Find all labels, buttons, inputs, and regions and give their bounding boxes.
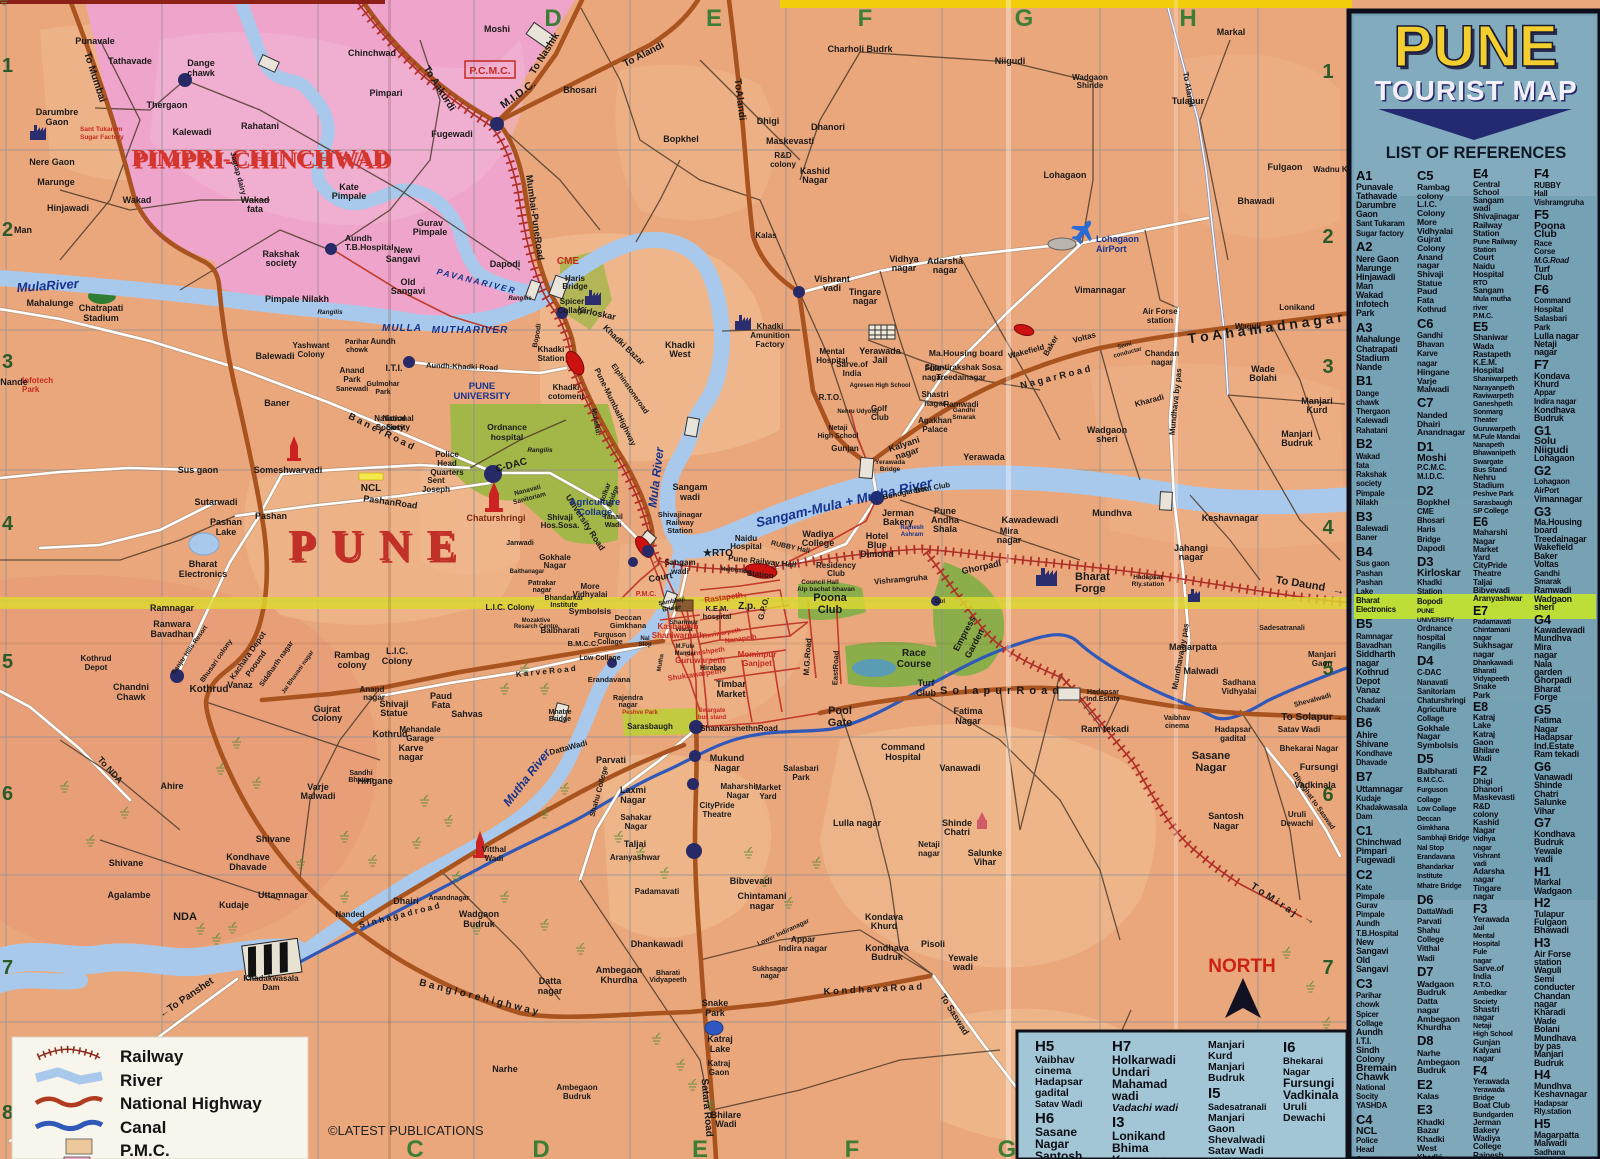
svg-text:To Solapur→: To Solapur→ bbox=[1281, 712, 1342, 723]
svg-text:fata: fata bbox=[247, 204, 264, 214]
svg-text:Institute: Institute bbox=[550, 602, 577, 609]
svg-text:Pimpale: Pimpale bbox=[413, 227, 448, 237]
svg-text:Khurdha: Khurdha bbox=[601, 975, 639, 985]
svg-text:©LATEST PUBLICATIONS: ©LATEST PUBLICATIONS bbox=[328, 1123, 484, 1138]
svg-text:T.B.Hospital: T.B.Hospital bbox=[345, 242, 394, 252]
svg-text:Parvati: Parvati bbox=[596, 755, 626, 765]
svg-text:Bhosari: Bhosari bbox=[563, 85, 597, 95]
svg-text:Ambegaon: Ambegaon bbox=[556, 1083, 597, 1092]
svg-text:Vidhyalai: Vidhyalai bbox=[573, 590, 608, 599]
svg-text:7: 7 bbox=[1322, 957, 1333, 979]
svg-text:Yard: Yard bbox=[759, 792, 776, 801]
svg-text:Dhankawadi: Dhankawadi bbox=[631, 939, 684, 949]
svg-text:Mahalunge: Mahalunge bbox=[26, 298, 73, 308]
svg-text:Maskevasti: Maskevasti bbox=[766, 136, 814, 146]
svg-text:Swargate: Swargate bbox=[699, 708, 726, 714]
svg-text:Council Hall: Council Hall bbox=[801, 579, 839, 586]
svg-text:Bharat: Bharat bbox=[1075, 571, 1110, 583]
svg-text:Dhavade: Dhavade bbox=[229, 862, 267, 872]
svg-text:Vimannagar: Vimannagar bbox=[1074, 285, 1126, 295]
svg-text:Kalas: Kalas bbox=[755, 231, 777, 240]
svg-text:Dapodi: Dapodi bbox=[490, 259, 521, 269]
svg-text:D: D bbox=[532, 1136, 549, 1159]
svg-text:Nagar: Nagar bbox=[714, 763, 740, 773]
svg-text:Nagar: Nagar bbox=[544, 561, 567, 570]
svg-text:wadi: wadi bbox=[670, 567, 689, 576]
svg-text:sheri: sheri bbox=[1096, 434, 1118, 444]
svg-text:Guruwarpeth: Guruwarpeth bbox=[675, 656, 725, 665]
svg-text:PIMPRI-CHINCHWAD: PIMPRI-CHINCHWAD bbox=[132, 146, 391, 172]
svg-text:Vaibhav: Vaibhav bbox=[1164, 715, 1191, 722]
svg-text:1: 1 bbox=[1322, 61, 1333, 83]
svg-text:nagar: nagar bbox=[1179, 552, 1204, 562]
svg-text:Lonikand: Lonikand bbox=[1279, 303, 1315, 312]
svg-text:Station: Station bbox=[667, 526, 693, 535]
svg-text:Budruk: Budruk bbox=[871, 952, 903, 962]
svg-text:Manjari: Manjari bbox=[1308, 650, 1336, 659]
svg-text:Dewachi: Dewachi bbox=[1281, 819, 1313, 828]
svg-text:Sangam: Sangam bbox=[664, 558, 695, 567]
svg-text:NDA: NDA bbox=[173, 911, 197, 923]
svg-text:R&D: R&D bbox=[774, 151, 792, 160]
svg-text:3: 3 bbox=[2, 351, 13, 373]
svg-text:Dange: Dange bbox=[187, 58, 215, 68]
svg-text:Mukund: Mukund bbox=[710, 753, 745, 763]
svg-text:7: 7 bbox=[2, 957, 13, 979]
svg-text:Command: Command bbox=[881, 742, 925, 752]
svg-text:Laxmi: Laxmi bbox=[620, 785, 646, 795]
svg-text:F: F bbox=[845, 1136, 860, 1159]
svg-text:hospital: hospital bbox=[491, 432, 524, 442]
svg-text:Club: Club bbox=[871, 413, 889, 422]
svg-text:Khadki: Khadki bbox=[553, 383, 580, 392]
svg-text:2: 2 bbox=[2, 219, 13, 241]
svg-text:Hirabag: Hirabag bbox=[700, 665, 726, 672]
svg-text:Sugar Factory: Sugar Factory bbox=[80, 134, 124, 141]
svg-text:Baithanagar: Baithanagar bbox=[510, 569, 545, 575]
svg-text:Mundhva: Mundhva bbox=[1092, 508, 1132, 518]
svg-text:Indira nagar: Indira nagar bbox=[779, 943, 828, 953]
svg-text:Pimpale: Pimpale bbox=[332, 191, 367, 201]
svg-text:Bhawadi: Bhawadi bbox=[1237, 196, 1274, 206]
svg-text:Sant Tukaram: Sant Tukaram bbox=[80, 126, 123, 133]
svg-text:B.M.C.C.: B.M.C.C. bbox=[568, 639, 599, 648]
svg-text:Palace: Palace bbox=[922, 425, 948, 434]
svg-text:Vihar: Vihar bbox=[974, 857, 997, 867]
svg-text:Vidyapeeth: Vidyapeeth bbox=[649, 977, 686, 984]
svg-text:Pisoli: Pisoli bbox=[921, 939, 945, 949]
svg-text:Bavadhan: Bavadhan bbox=[150, 629, 193, 639]
svg-text:Bridge: Bridge bbox=[549, 716, 571, 723]
svg-text:Wakad: Wakad bbox=[123, 195, 152, 205]
svg-text:station: station bbox=[1147, 316, 1173, 325]
svg-text:Lulla nagar: Lulla nagar bbox=[833, 818, 882, 828]
svg-text:2: 2 bbox=[1322, 226, 1333, 248]
svg-text:Jail: Jail bbox=[872, 355, 887, 365]
svg-text:Salasbari: Salasbari bbox=[783, 764, 819, 773]
svg-text:Patrakar: Patrakar bbox=[528, 580, 556, 587]
svg-text:Fatima: Fatima bbox=[953, 706, 983, 716]
svg-text:4: 4 bbox=[1322, 517, 1334, 539]
svg-text:1: 1 bbox=[2, 55, 13, 77]
svg-text:Turf: Turf bbox=[918, 678, 936, 688]
svg-text:Lake: Lake bbox=[216, 527, 237, 537]
svg-text:Keshavnagar: Keshavnagar bbox=[1202, 513, 1259, 523]
svg-text:Rahatani: Rahatani bbox=[241, 121, 279, 131]
svg-text:Ramnagar: Ramnagar bbox=[150, 603, 195, 613]
svg-text:Agalambe: Agalambe bbox=[107, 890, 150, 900]
svg-text:Sutarwadi: Sutarwadi bbox=[194, 497, 237, 507]
svg-text:Park: Park bbox=[705, 1008, 726, 1018]
svg-text:Shivane: Shivane bbox=[109, 858, 144, 868]
svg-text:S o l a p u r R o a d: S o l a p u r R o a d bbox=[940, 685, 1060, 697]
svg-text:nagar: nagar bbox=[853, 296, 878, 306]
svg-text:Stop: Stop bbox=[638, 642, 652, 648]
svg-text:Khurd: Khurd bbox=[871, 921, 898, 931]
svg-text:Tanail: Tanail bbox=[603, 514, 623, 521]
svg-text:Wadi: Wadi bbox=[485, 854, 504, 863]
svg-text:Nagar: Nagar bbox=[727, 791, 750, 800]
svg-text:Sarve.of: Sarve.of bbox=[836, 360, 868, 369]
svg-text:Dimond: Dimond bbox=[860, 549, 894, 559]
svg-text:Nere Gaon: Nere Gaon bbox=[29, 157, 75, 167]
svg-text:Kalewadi: Kalewadi bbox=[172, 127, 211, 137]
svg-text:West: West bbox=[669, 349, 690, 359]
svg-text:Ambegaon: Ambegaon bbox=[596, 965, 643, 975]
svg-text:Chatri: Chatri bbox=[944, 827, 970, 837]
svg-text:Bharat: Bharat bbox=[189, 559, 218, 569]
svg-text:Anandnagar: Anandnagar bbox=[429, 895, 470, 902]
svg-text:Yashwant: Yashwant bbox=[293, 341, 330, 350]
svg-text:Pool: Pool bbox=[828, 705, 852, 717]
svg-text:Nagar: Nagar bbox=[1213, 821, 1239, 831]
svg-text:Katraj: Katraj bbox=[708, 1059, 731, 1068]
svg-text:Collage: Collage bbox=[558, 306, 587, 315]
svg-text:Bopkhel: Bopkhel bbox=[663, 134, 699, 144]
svg-text:Gunjan: Gunjan bbox=[831, 444, 859, 453]
svg-text:Yerawada: Yerawada bbox=[963, 452, 1006, 462]
svg-text:Gulmohar: Gulmohar bbox=[366, 381, 399, 388]
svg-text:Fursungi: Fursungi bbox=[1300, 762, 1339, 772]
svg-text:Treedainagar: Treedainagar bbox=[936, 373, 986, 382]
svg-text:nagar: nagar bbox=[399, 752, 424, 762]
svg-text:Chintamani: Chintamani bbox=[737, 891, 786, 901]
svg-text:Markal: Markal bbox=[1217, 27, 1246, 37]
svg-text:Parihar: Parihar bbox=[345, 339, 369, 346]
svg-text:Colony: Colony bbox=[382, 656, 413, 666]
svg-text:Budruk: Budruk bbox=[463, 919, 495, 929]
svg-text:Ram tekadi: Ram tekadi bbox=[1081, 724, 1129, 734]
svg-text:Uttamnagar: Uttamnagar bbox=[258, 890, 309, 900]
svg-text:Ma.Housing board: Ma.Housing board bbox=[929, 348, 1003, 358]
svg-text:Garage: Garage bbox=[406, 734, 434, 743]
svg-text:Gaon: Gaon bbox=[1312, 659, 1333, 668]
svg-text:Dhigi: Dhigi bbox=[757, 116, 780, 126]
svg-text:Aranyashwar: Aranyashwar bbox=[610, 853, 660, 862]
svg-text:Socity: Socity bbox=[386, 423, 411, 432]
svg-text:Gimkhana: Gimkhana bbox=[610, 621, 647, 630]
svg-text:Waguli: Waguli bbox=[1235, 322, 1261, 331]
svg-text:Vanaz: Vanaz bbox=[227, 680, 253, 690]
svg-text:Kurd: Kurd bbox=[1307, 405, 1328, 415]
svg-text:Mominpur: Mominpur bbox=[738, 650, 777, 659]
svg-text:Rajnesh: Rajnesh bbox=[900, 525, 924, 531]
svg-text:Ordnance: Ordnance bbox=[487, 422, 527, 432]
svg-text:Bolahi: Bolahi bbox=[1249, 373, 1277, 383]
svg-text:Sahakar: Sahakar bbox=[620, 813, 651, 822]
svg-text:Hospital: Hospital bbox=[885, 752, 921, 762]
svg-text:Shastri: Shastri bbox=[921, 390, 948, 399]
svg-text:Fugewadi: Fugewadi bbox=[431, 129, 473, 139]
svg-text:CME: CME bbox=[557, 256, 580, 267]
svg-text:Resarch Centre: Resarch Centre bbox=[514, 624, 559, 630]
svg-text:wadi: wadi bbox=[679, 492, 700, 502]
svg-text:Ganjpet: Ganjpet bbox=[742, 659, 772, 668]
svg-text:Budruk: Budruk bbox=[1281, 438, 1313, 448]
svg-text:L.I.C. Colony: L.I.C. Colony bbox=[486, 603, 535, 612]
svg-text:Park: Park bbox=[375, 389, 390, 396]
svg-text:Golf: Golf bbox=[871, 404, 887, 413]
svg-text:Chawk: Chawk bbox=[116, 692, 146, 702]
svg-text:8: 8 bbox=[2, 1102, 13, 1124]
svg-text:Shala: Shala bbox=[933, 524, 958, 534]
svg-text:L.I.C.: L.I.C. bbox=[386, 646, 408, 656]
svg-text:Factory: Factory bbox=[756, 340, 785, 349]
svg-text:Rangilis: Rangilis bbox=[317, 309, 343, 316]
svg-text:Sadhana: Sadhana bbox=[1222, 678, 1256, 687]
svg-text:Punavale: Punavale bbox=[75, 36, 115, 46]
svg-text:Erandavana: Erandavana bbox=[588, 675, 631, 684]
svg-text:CityPride: CityPride bbox=[699, 801, 735, 810]
svg-text:5: 5 bbox=[2, 651, 13, 673]
svg-text:nagar: nagar bbox=[997, 535, 1022, 545]
svg-text:Kudaje: Kudaje bbox=[219, 900, 249, 910]
svg-text:Sasane: Sasane bbox=[1192, 750, 1231, 762]
svg-text:Tulapur: Tulapur bbox=[1172, 96, 1205, 106]
svg-text:Bridge: Bridge bbox=[880, 466, 901, 473]
svg-text:Nande: Nande bbox=[0, 377, 28, 387]
svg-text:Chinchwad: Chinchwad bbox=[348, 48, 396, 58]
svg-text:Hadapsar: Hadapsar bbox=[1215, 725, 1251, 734]
svg-text:Hos.Sosa.: Hos.Sosa. bbox=[541, 521, 580, 530]
svg-text:Sangavi: Sangavi bbox=[391, 286, 426, 296]
svg-text:Market: Market bbox=[716, 689, 745, 699]
svg-text:nagar: nagar bbox=[760, 973, 779, 980]
svg-text:Netaji: Netaji bbox=[828, 425, 847, 432]
svg-text:Quarters: Quarters bbox=[430, 468, 464, 477]
svg-text:Chaturshringi: Chaturshringi bbox=[466, 513, 525, 523]
svg-text:Club: Club bbox=[916, 688, 936, 698]
svg-text:hospital: hospital bbox=[703, 612, 732, 621]
svg-text:C: C bbox=[406, 1136, 423, 1159]
svg-text:Joseph: Joseph bbox=[422, 485, 450, 494]
svg-text:Mehandale: Mehandale bbox=[399, 725, 441, 734]
svg-text:gadital: gadital bbox=[1220, 734, 1246, 743]
svg-text:colony: colony bbox=[337, 660, 366, 670]
svg-text:Yerawada: Yerawada bbox=[875, 459, 905, 466]
svg-text:Hadapsar: Hadapsar bbox=[1133, 574, 1163, 581]
svg-text:3: 3 bbox=[1322, 356, 1333, 378]
svg-text:Sukhsagar: Sukhsagar bbox=[752, 966, 788, 973]
svg-text:Padamavati: Padamavati bbox=[635, 887, 679, 896]
svg-text:P.M.C.: P.M.C. bbox=[636, 591, 657, 598]
svg-text:Forge: Forge bbox=[1075, 583, 1106, 595]
svg-text:Sangavi: Sangavi bbox=[386, 254, 421, 264]
svg-text:Datta: Datta bbox=[539, 976, 562, 986]
svg-text:Ahire: Ahire bbox=[160, 781, 183, 791]
svg-text:Ashram: Ashram bbox=[901, 532, 923, 538]
svg-text:Sandhi: Sandhi bbox=[349, 770, 372, 777]
svg-text:Electronics: Electronics bbox=[179, 569, 228, 579]
svg-text:Katraj: Katraj bbox=[707, 1034, 733, 1044]
svg-text:nagar: nagar bbox=[1151, 358, 1173, 367]
svg-text:Janwadi: Janwadi bbox=[506, 540, 534, 547]
svg-text:Rangilis: Rangilis bbox=[527, 447, 553, 454]
svg-text:Dhairi: Dhairi bbox=[393, 896, 419, 906]
svg-text:Anand: Anand bbox=[340, 366, 365, 375]
svg-text:M.Fule: M.Fule bbox=[676, 644, 696, 650]
svg-text:Agakhan: Agakhan bbox=[918, 416, 952, 425]
svg-text:Nagar: Nagar bbox=[802, 175, 828, 185]
svg-text:Nagar: Nagar bbox=[620, 795, 646, 805]
svg-text:Thergaon: Thergaon bbox=[146, 100, 187, 110]
svg-text:bus stand: bus stand bbox=[698, 715, 727, 721]
svg-text:Malwadi: Malwadi bbox=[1183, 666, 1218, 676]
svg-text:Lake: Lake bbox=[710, 1044, 731, 1054]
svg-text:Statue: Statue bbox=[380, 708, 408, 718]
svg-text:nagar: nagar bbox=[933, 265, 958, 275]
svg-text:Collage: Collage bbox=[597, 639, 622, 646]
svg-text:Timbar: Timbar bbox=[716, 679, 746, 689]
svg-text:Man: Man bbox=[14, 225, 32, 235]
svg-text:Bhekarai Nagar: Bhekarai Nagar bbox=[1280, 744, 1339, 753]
svg-text:Malwadi: Malwadi bbox=[300, 791, 335, 801]
svg-text:Police: Police bbox=[435, 450, 459, 459]
svg-text:TOURIST MAP: TOURIST MAP bbox=[1374, 75, 1577, 106]
svg-text:Netaji: Netaji bbox=[918, 840, 940, 849]
svg-text:cinema: cinema bbox=[1165, 723, 1189, 730]
svg-text:Club: Club bbox=[827, 569, 845, 578]
svg-text:Nanded: Nanded bbox=[335, 910, 364, 919]
svg-text:Kothrud: Kothrud bbox=[80, 654, 111, 663]
svg-text:Balewadi: Balewadi bbox=[255, 351, 294, 361]
svg-text:wadi: wadi bbox=[952, 962, 973, 972]
svg-text:Park: Park bbox=[343, 375, 361, 384]
svg-text:Pimpari: Pimpari bbox=[369, 88, 402, 98]
svg-text:India: India bbox=[843, 369, 862, 378]
svg-text:Sent: Sent bbox=[427, 476, 445, 485]
svg-text:Khadki: Khadki bbox=[538, 345, 565, 354]
svg-text:Tathavade: Tathavade bbox=[108, 56, 152, 66]
svg-text:Smarak: Smarak bbox=[952, 414, 976, 421]
svg-text:Hospital: Hospital bbox=[730, 542, 762, 551]
svg-text:G: G bbox=[1015, 5, 1034, 32]
svg-text:Gaon: Gaon bbox=[709, 1068, 730, 1077]
svg-text:cotoment: cotoment bbox=[548, 392, 584, 401]
svg-text:Kothrud: Kothrud bbox=[190, 684, 229, 695]
svg-text:nagar: nagar bbox=[538, 986, 563, 996]
svg-text:Dam: Dam bbox=[262, 983, 279, 992]
svg-text:Fata: Fata bbox=[432, 700, 452, 710]
svg-text:Uruli: Uruli bbox=[1288, 810, 1306, 819]
svg-text:F: F bbox=[858, 5, 873, 32]
svg-text:Sanewadi: Sanewadi bbox=[336, 386, 368, 393]
svg-text:Budruk: Budruk bbox=[563, 1092, 592, 1101]
svg-text:nagar: nagar bbox=[918, 849, 940, 858]
svg-text:Theatre: Theatre bbox=[703, 810, 732, 819]
svg-text:Stadium: Stadium bbox=[83, 313, 119, 323]
svg-text:Market: Market bbox=[755, 783, 781, 792]
svg-text:Someshwarvadi: Someshwarvadi bbox=[254, 465, 323, 475]
svg-text:Pashan: Pashan bbox=[255, 511, 287, 521]
svg-text:Sangam: Sangam bbox=[672, 482, 707, 492]
svg-text:Snake: Snake bbox=[702, 998, 729, 1008]
svg-text:PUNE: PUNE bbox=[1393, 14, 1558, 79]
svg-text:Spicer: Spicer bbox=[560, 297, 584, 306]
svg-text:Hinjawadi: Hinjawadi bbox=[47, 203, 89, 213]
svg-text:Wadgaon: Wadgaon bbox=[459, 909, 499, 919]
svg-text:Wadi: Wadi bbox=[605, 522, 622, 529]
svg-text:R.T.O.: R.T.O. bbox=[819, 393, 842, 402]
svg-text:Nagar: Nagar bbox=[625, 822, 648, 831]
svg-text:Ind.Estate: Ind.Estate bbox=[1086, 696, 1120, 703]
svg-text:AirPort: AirPort bbox=[1096, 244, 1127, 254]
svg-text:Z.p.: Z.p. bbox=[738, 601, 756, 612]
svg-text:6: 6 bbox=[2, 783, 13, 805]
svg-text:Bhavan: Bhavan bbox=[348, 777, 373, 784]
svg-text:Course: Course bbox=[897, 659, 932, 670]
svg-text:Darumbre: Darumbre bbox=[36, 107, 79, 117]
svg-text:College: College bbox=[802, 538, 835, 548]
svg-text:Race: Race bbox=[902, 648, 926, 659]
svg-text:LIST OF REFERENCES: LIST OF REFERENCES bbox=[1386, 144, 1567, 162]
svg-text:Maharshi: Maharshi bbox=[720, 782, 755, 791]
svg-text:Colony: Colony bbox=[297, 350, 325, 359]
svg-text:Sus gaon: Sus gaon bbox=[178, 465, 219, 475]
svg-text:Shinde: Shinde bbox=[1077, 81, 1104, 90]
svg-text:Park: Park bbox=[792, 773, 810, 782]
svg-text:Low Collage: Low Collage bbox=[579, 655, 620, 662]
svg-text:Khadakwasala: Khadakwasala bbox=[243, 974, 299, 983]
svg-text:vadi: vadi bbox=[823, 283, 841, 293]
svg-text:Narhe: Narhe bbox=[492, 1064, 518, 1074]
svg-text:G: G bbox=[998, 1136, 1017, 1159]
svg-text:Amunition: Amunition bbox=[750, 331, 790, 340]
svg-text:Kondhave: Kondhave bbox=[226, 852, 270, 862]
svg-text:Mental: Mental bbox=[819, 347, 844, 356]
svg-text:Bharati: Bharati bbox=[656, 970, 680, 977]
svg-text:Khadki: Khadki bbox=[757, 322, 784, 331]
svg-text:Vitthal: Vitthal bbox=[482, 845, 506, 854]
svg-text:Station: Station bbox=[537, 354, 564, 363]
svg-text:NCL: NCL bbox=[361, 483, 382, 494]
svg-text:Nagar: Nagar bbox=[955, 716, 981, 726]
svg-text:Marunge: Marunge bbox=[37, 177, 75, 187]
svg-text:Chandan: Chandan bbox=[1145, 349, 1179, 358]
svg-text:Air Forse: Air Forse bbox=[1142, 307, 1178, 316]
svg-text:Kawadewadi: Kawadewadi bbox=[1001, 515, 1058, 526]
svg-text:Vanawadi: Vanawadi bbox=[939, 763, 980, 773]
svg-text:Chandni: Chandni bbox=[113, 682, 149, 692]
svg-text:Head: Head bbox=[437, 459, 457, 468]
svg-text:Santosh: Santosh bbox=[1208, 811, 1244, 821]
svg-text:Pashan: Pashan bbox=[210, 517, 242, 527]
svg-text:Lohagaon: Lohagaon bbox=[1044, 170, 1087, 180]
svg-text:Peshve Park: Peshve Park bbox=[622, 710, 658, 716]
svg-text:chawk: chawk bbox=[187, 68, 216, 78]
svg-text:EastRoad: EastRoad bbox=[830, 650, 840, 685]
svg-text:E: E bbox=[692, 1136, 708, 1159]
